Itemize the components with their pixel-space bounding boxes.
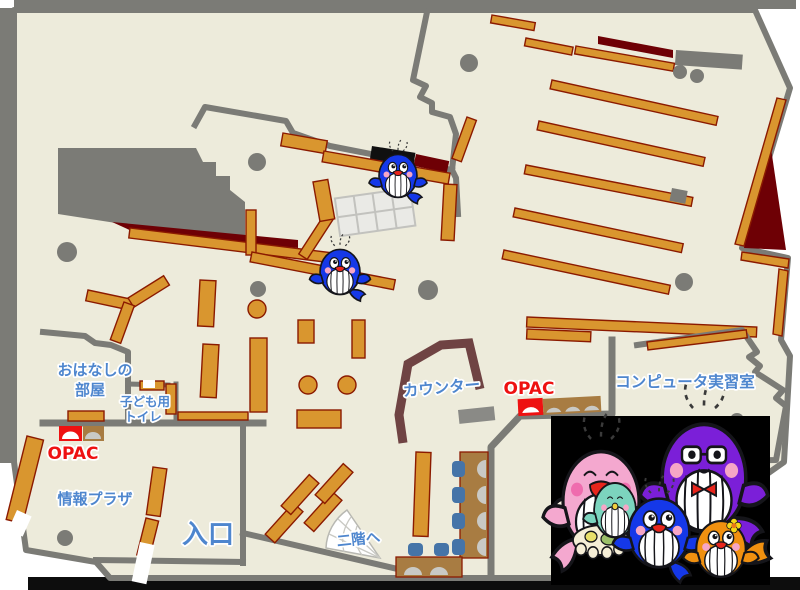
floor-map-canvas: おはなしの 部屋 子ども用 トイレ OPAC 情報プラザ 入口 二階へ カウンタ… [0, 0, 800, 590]
label-storytelling-room-line1: おはなしの [57, 361, 132, 379]
label-info-plaza: 情報プラザ [57, 490, 132, 508]
opac-station-left [59, 426, 104, 441]
label-opac-right: OPAC [504, 379, 555, 399]
label-storytelling-room-line2: 部屋 [75, 381, 105, 399]
label-entrance: 入口 [182, 520, 234, 550]
label-computer-room: コンピュータ実習室 [615, 372, 755, 391]
library-floor-map: おはなしの 部屋 子ども用 トイレ OPAC 情報プラザ 入口 二階へ カウンタ… [0, 0, 800, 590]
label-kids-toilet-line1: 子ども用 [120, 394, 170, 409]
label-kids-toilet-line2: トイレ [124, 409, 162, 424]
label-opac-left: OPAC [48, 444, 99, 464]
